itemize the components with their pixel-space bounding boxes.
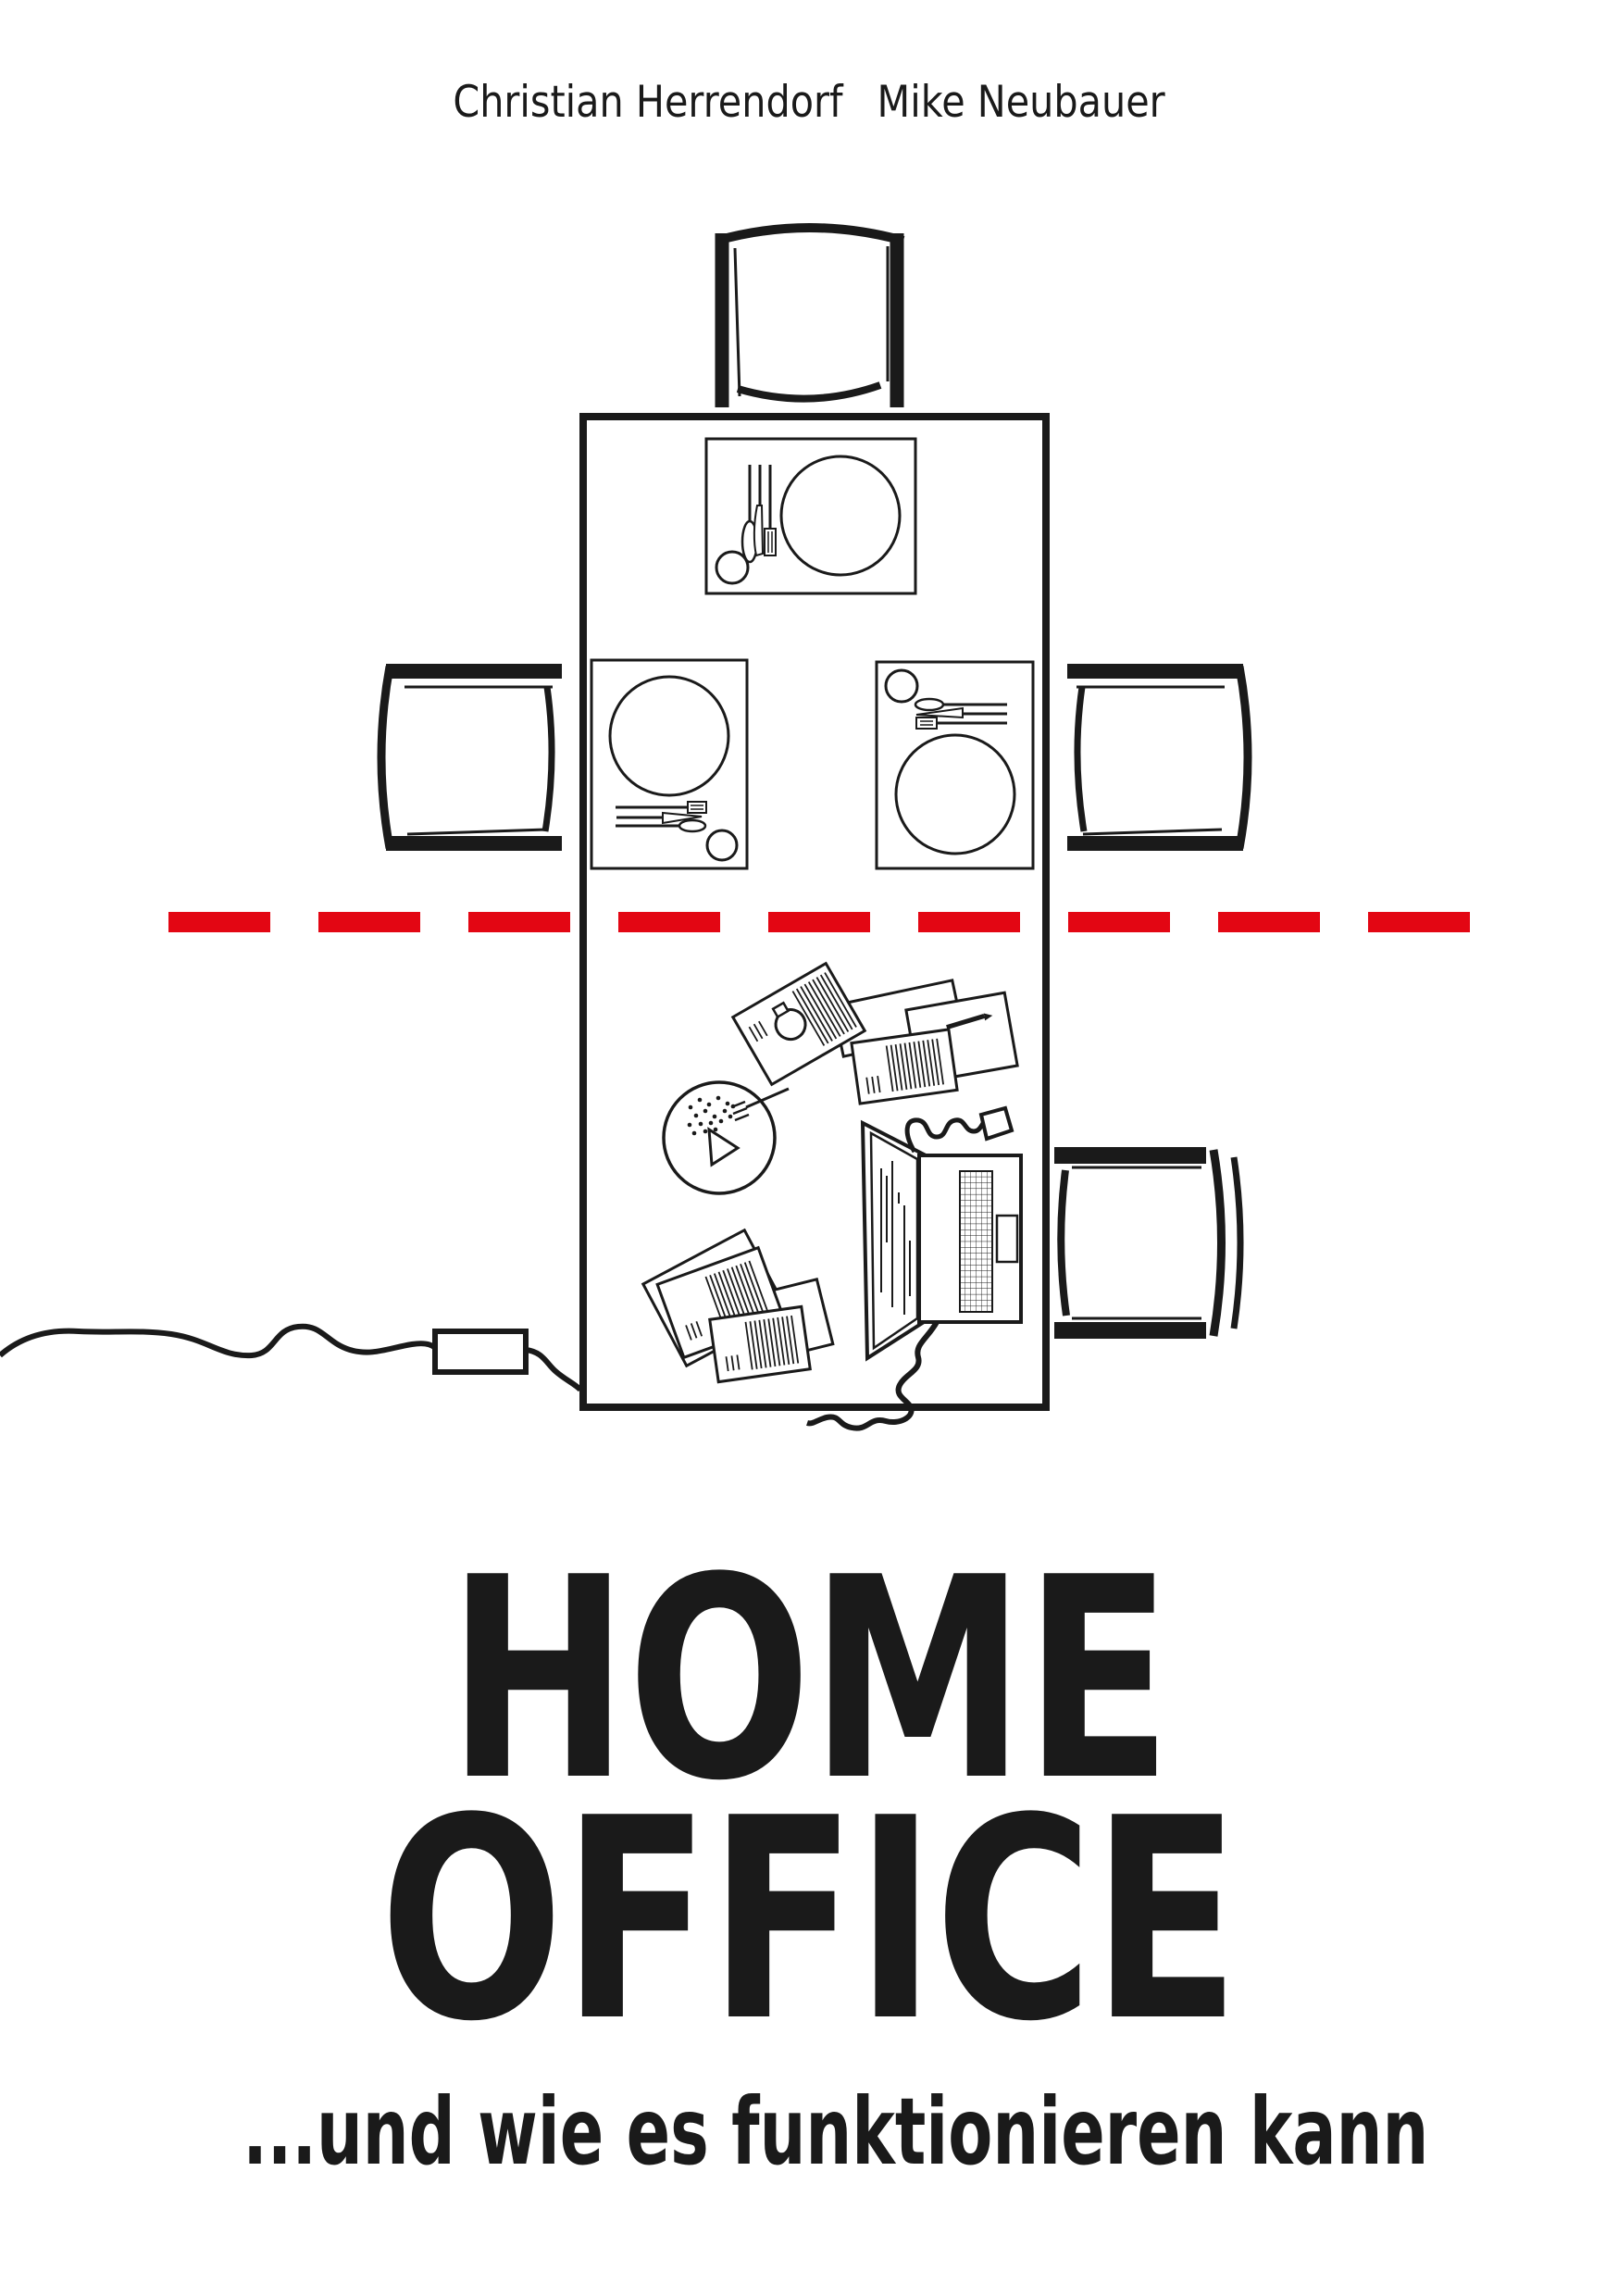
laptop-keyboard <box>960 1171 992 1312</box>
laptop-trackpad <box>997 1216 1017 1262</box>
book-cover-page: Christian Herrendorf Mike Neubauer HOME … <box>0 0 1618 2296</box>
chair-top-icon <box>716 228 903 407</box>
cutlery-icon <box>915 699 1007 729</box>
glass-icon <box>707 830 737 860</box>
power-adapter-icon <box>435 1331 526 1372</box>
author-name-1: Christian Herrendorf <box>453 80 842 128</box>
glass-icon <box>886 670 917 702</box>
plate-icon <box>610 677 728 795</box>
place-setting-left-icon <box>591 660 747 868</box>
plate-icon <box>896 735 1014 854</box>
author-names: Christian Herrendorf Mike Neubauer <box>97 80 1521 128</box>
chair-right-icon <box>1067 667 1248 848</box>
place-setting-top-icon <box>706 439 915 593</box>
plate-icon <box>781 456 900 575</box>
author-name-2: Mike Neubauer <box>877 80 1165 128</box>
chair-left-icon <box>381 667 562 848</box>
cutlery-icon <box>616 802 706 831</box>
glass-icon <box>716 552 748 583</box>
chair-bottom-right-icon <box>1054 1150 1240 1336</box>
place-setting-right-icon <box>877 662 1033 868</box>
book-title-line-2: OFFICE <box>178 1782 1439 2060</box>
power-cable-icon <box>0 1327 580 1390</box>
book-subtitle: ...und wie es funktionieren kann <box>243 2081 1375 2183</box>
